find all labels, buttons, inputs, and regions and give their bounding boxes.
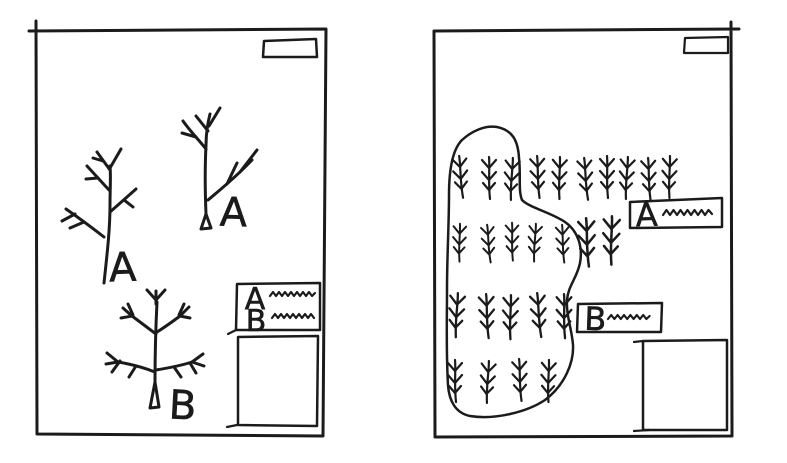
left-image-placeholder-box <box>227 336 318 427</box>
tree-b-label: B <box>168 382 198 429</box>
legend-box-overshoot <box>228 330 236 334</box>
sketch-page: A A <box>0 0 787 463</box>
sprig-icon <box>479 294 495 339</box>
legend-row-a-squiggle-line <box>270 292 315 296</box>
sketch-canvas: A A <box>0 0 787 463</box>
right-image-placeholder-box <box>634 340 727 431</box>
label-a-squiggle-line <box>663 210 712 215</box>
sprig-icon <box>452 224 466 262</box>
left-page-panel: A A <box>29 21 326 436</box>
sprig-icon <box>600 156 614 198</box>
label-a-letter: A <box>635 196 658 235</box>
sprig-icon <box>530 156 545 198</box>
sprig-icon <box>503 158 520 201</box>
label-box-b: B <box>577 300 662 339</box>
left-title-box <box>263 39 317 57</box>
legend-row-b-label: B <box>246 304 267 339</box>
label-b-letter: B <box>584 300 607 339</box>
sprig-icon <box>452 156 469 199</box>
sprig-icon <box>551 157 566 199</box>
legend-box: A B <box>228 282 320 339</box>
label-box-a: A <box>630 196 722 235</box>
sprig-icon <box>602 216 620 265</box>
sprig-icon <box>540 360 555 402</box>
sprig-icon <box>556 225 570 263</box>
sprig-icon <box>482 157 496 199</box>
sprig-icon <box>512 359 527 401</box>
sprig-icon <box>577 158 594 201</box>
sprig-icon <box>447 293 465 338</box>
right-title-box <box>684 37 728 53</box>
sprig-icon <box>661 156 676 198</box>
legend-row-b-squiggle-line <box>272 314 314 318</box>
sprig-icon <box>527 223 542 262</box>
tree-a2-label: A <box>219 190 249 237</box>
sprig-icon <box>641 158 656 200</box>
right-page-panel: A B <box>434 22 739 437</box>
sprig-icon <box>502 295 518 340</box>
sprig-icon <box>481 224 496 263</box>
sprig-icon <box>479 361 496 404</box>
sprig-icon <box>618 157 635 200</box>
sprig-icon <box>506 223 519 261</box>
tree-a1-label: A <box>108 245 138 292</box>
sprig-icon <box>530 293 548 338</box>
label-b-squiggle-line <box>608 315 650 319</box>
